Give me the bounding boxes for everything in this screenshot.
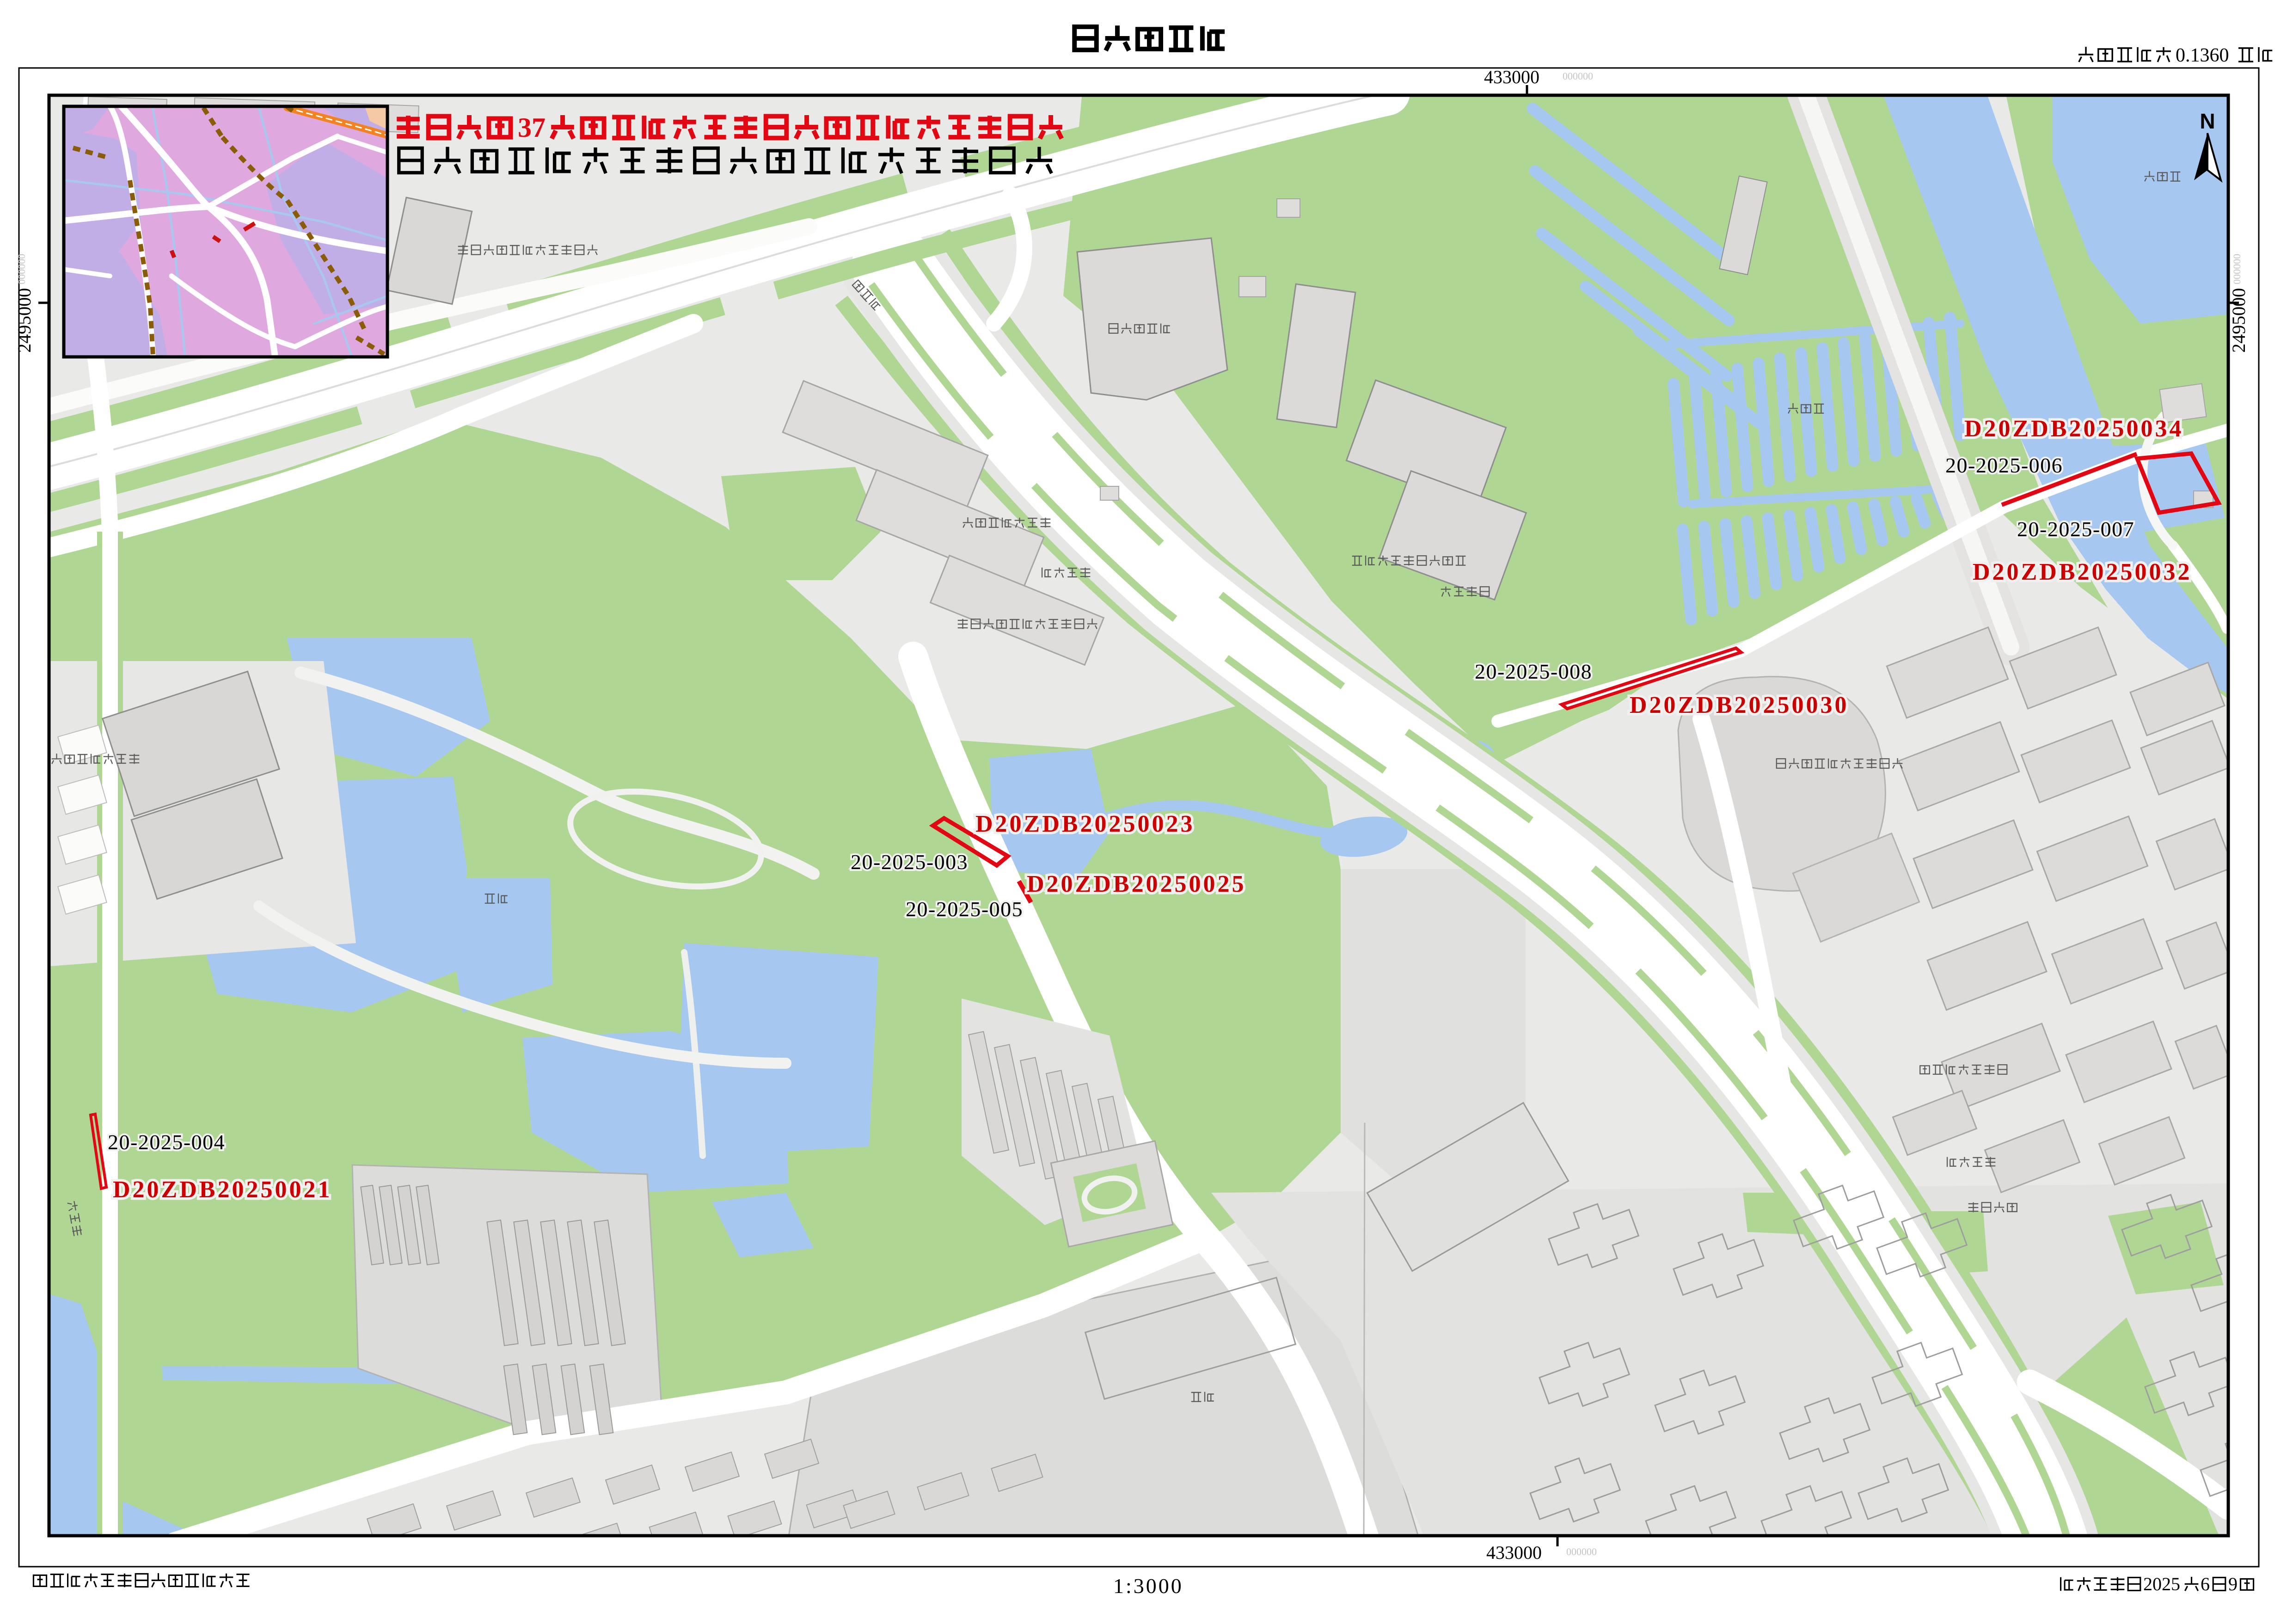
svg-text:20-2025-008: 20-2025-008 [1475, 660, 1592, 683]
svg-text:D20ZDB20250034: D20ZDB20250034 [1964, 416, 2183, 442]
svg-text:2495000: 2495000 [14, 288, 35, 353]
svg-text:D20ZDB20250030: D20ZDB20250030 [1630, 692, 1849, 718]
svg-text:20-2025-003: 20-2025-003 [851, 850, 968, 874]
svg-text:20-2025-006: 20-2025-006 [1945, 453, 2063, 477]
svg-text:20-2025-004: 20-2025-004 [108, 1130, 225, 1154]
svg-text:000000: 000000 [2231, 254, 2243, 284]
svg-text:0.1360: 0.1360 [2176, 45, 2229, 66]
svg-text:20-2025-005: 20-2025-005 [906, 897, 1023, 921]
svg-text:D20ZDB20250025: D20ZDB20250025 [1027, 871, 1246, 897]
svg-text:37: 37 [518, 112, 546, 143]
svg-text:2495000: 2495000 [2228, 288, 2249, 353]
svg-text:2025: 2025 [2143, 1574, 2180, 1594]
svg-text:N: N [2200, 109, 2215, 133]
svg-text:D20ZDB20250021: D20ZDB20250021 [113, 1177, 332, 1203]
svg-text:000000: 000000 [16, 254, 27, 284]
svg-text:433000: 433000 [1484, 67, 1539, 87]
svg-text:9: 9 [2228, 1574, 2238, 1594]
svg-text:433000: 433000 [1486, 1542, 1542, 1563]
svg-text:000000: 000000 [1566, 1546, 1597, 1557]
svg-text:D20ZDB20250023: D20ZDB20250023 [975, 811, 1195, 837]
svg-text:1:3000: 1:3000 [1113, 1574, 1183, 1598]
svg-text:000000: 000000 [1563, 70, 1593, 82]
svg-text:20-2025-007: 20-2025-007 [2017, 517, 2134, 541]
svg-text:6: 6 [2201, 1574, 2210, 1594]
svg-text:D20ZDB20250032: D20ZDB20250032 [1973, 559, 2192, 585]
